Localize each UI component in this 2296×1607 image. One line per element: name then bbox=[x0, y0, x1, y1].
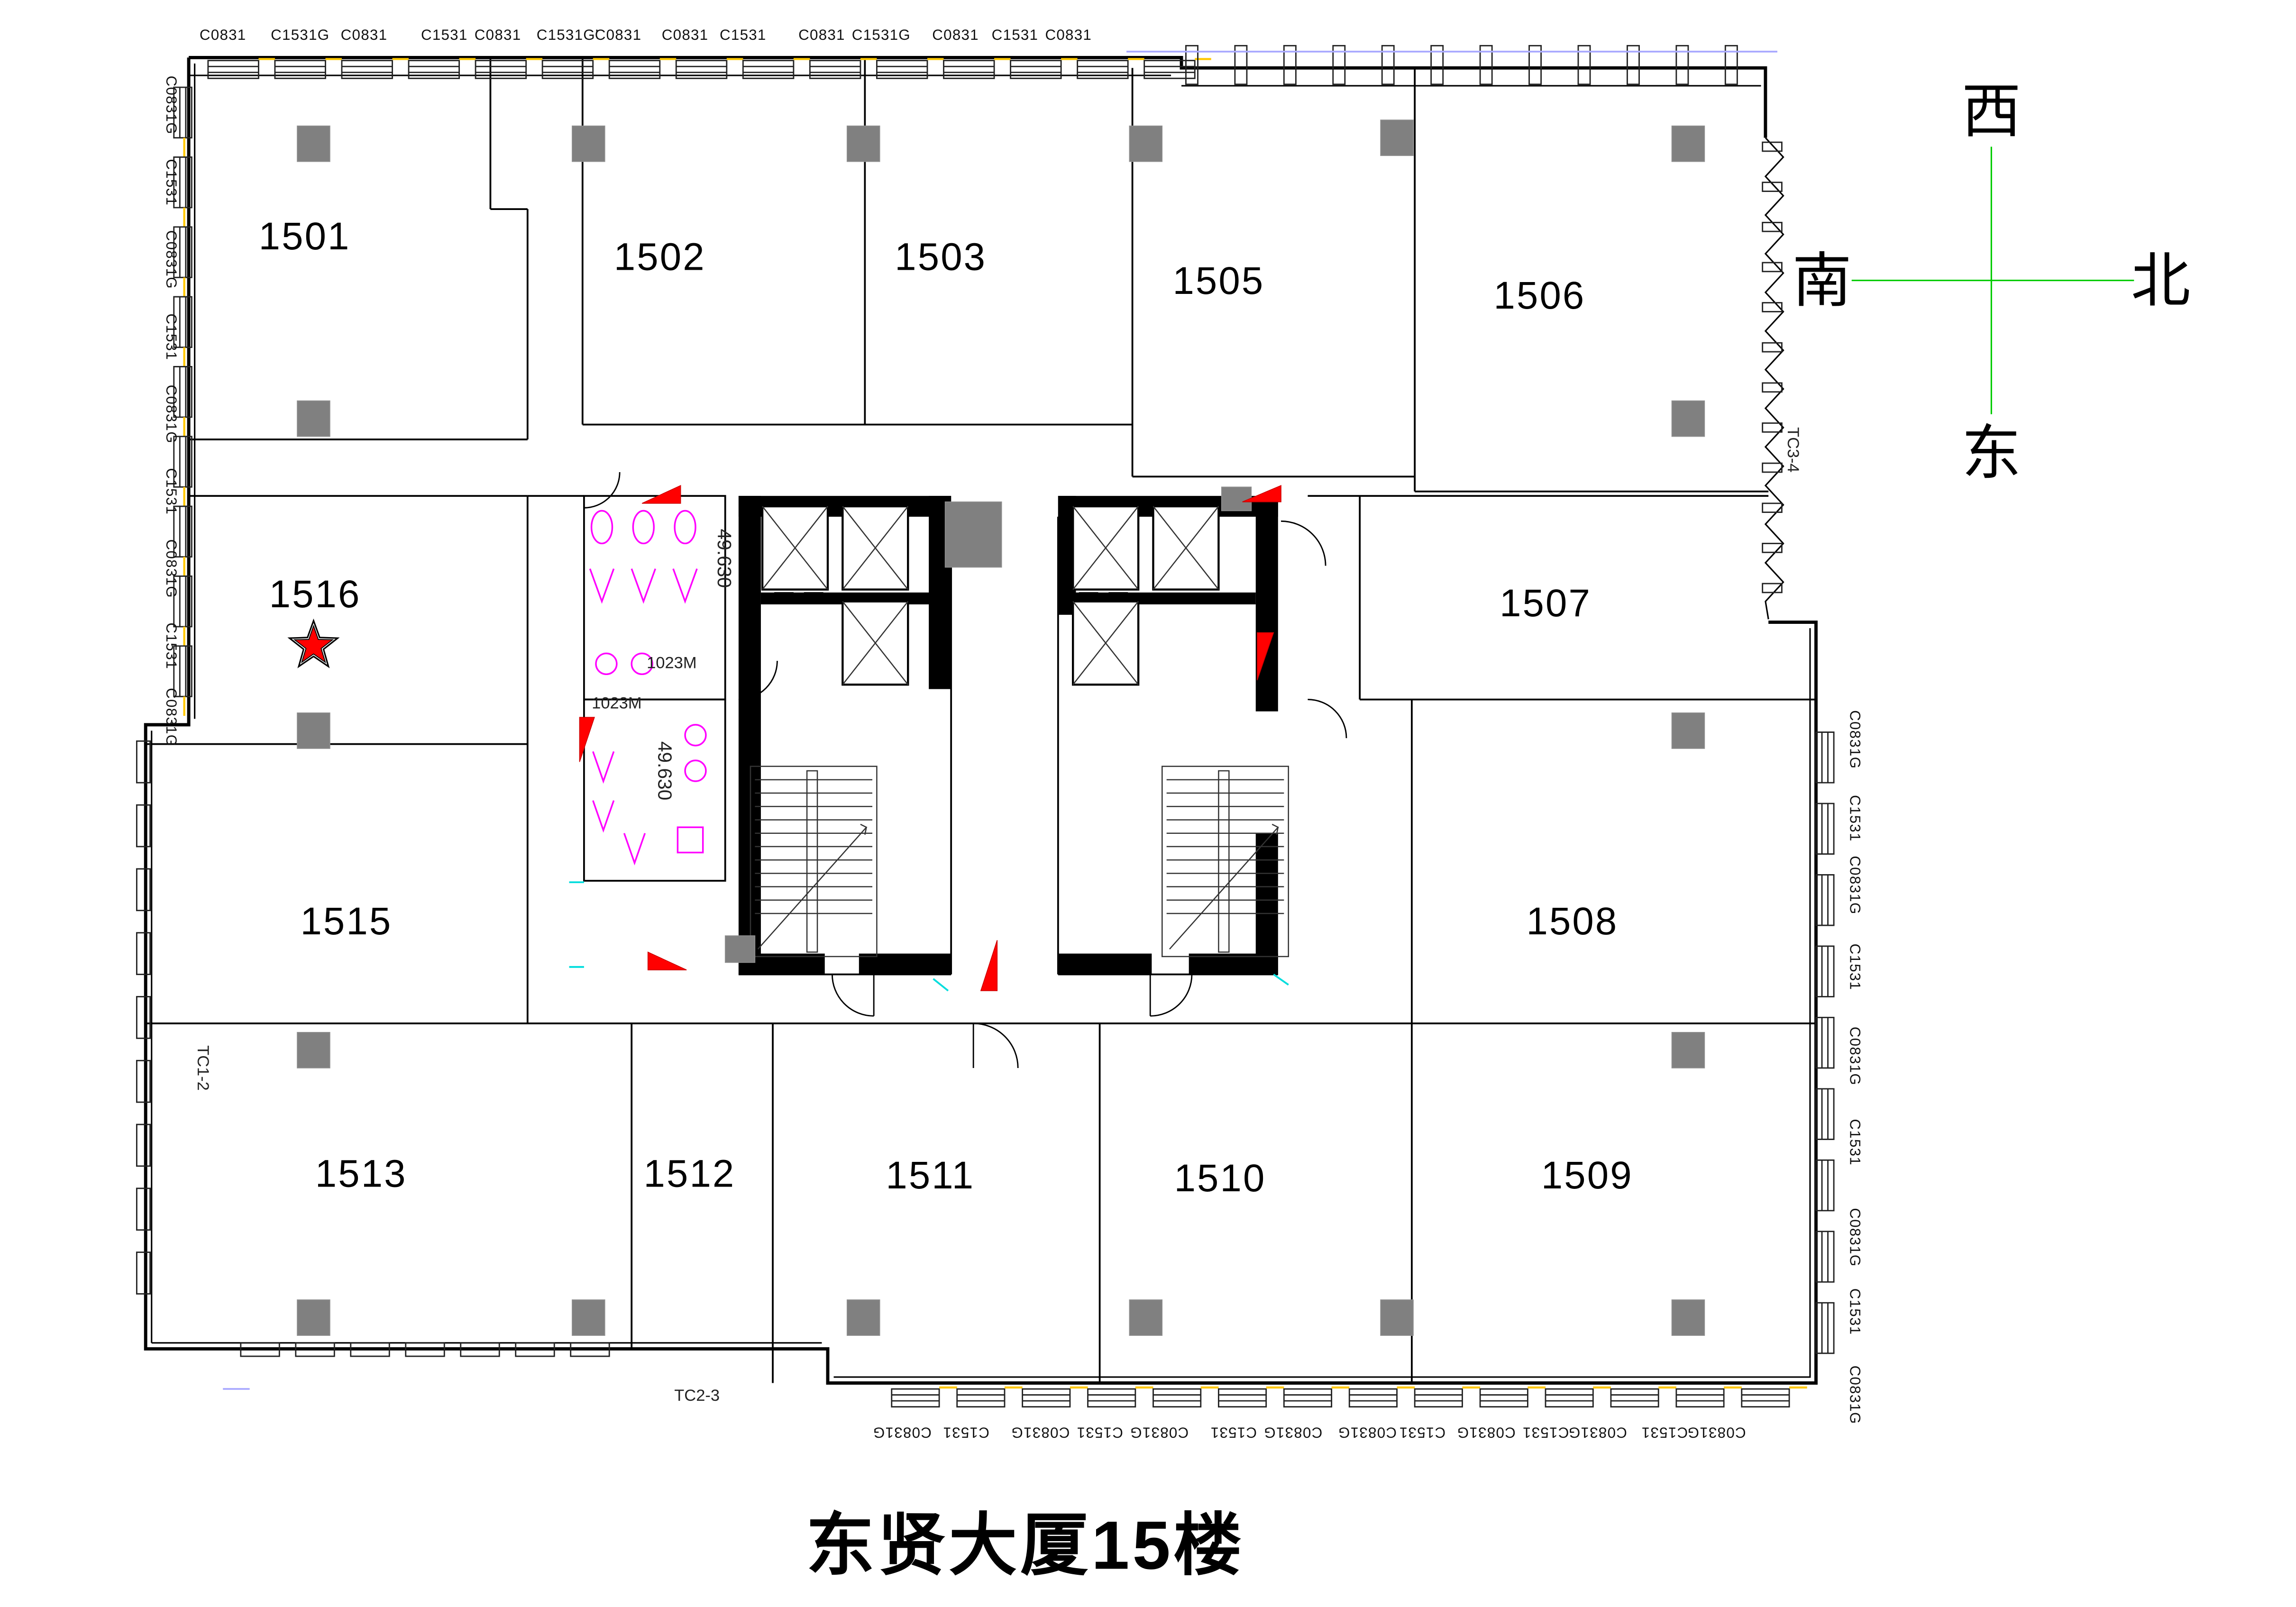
window-type-label: C1531 bbox=[1847, 795, 1864, 842]
window-type-label: C1531 bbox=[1210, 1424, 1257, 1441]
sink-icon bbox=[685, 760, 706, 781]
window-type-label: C0831G bbox=[1568, 1424, 1627, 1441]
window-type-label: C0831 bbox=[1045, 27, 1092, 43]
window-type-label: C0831 bbox=[341, 27, 388, 43]
window-glyph bbox=[1415, 1389, 1462, 1407]
wall-pier bbox=[1763, 584, 1782, 593]
column bbox=[1672, 1032, 1704, 1068]
mop-sink-icon bbox=[677, 827, 703, 852]
room-label-1512: 1512 bbox=[644, 1152, 736, 1196]
urinal-icon bbox=[592, 511, 613, 543]
location-star-icon bbox=[290, 621, 338, 667]
sink-icon bbox=[685, 725, 706, 746]
compass-west: 西 bbox=[1962, 79, 2021, 145]
wall-pier bbox=[1763, 423, 1782, 432]
window-tick bbox=[137, 1124, 150, 1166]
window-type-label: C1531 bbox=[1076, 1424, 1123, 1441]
window-type-label: C1531 bbox=[1847, 1119, 1864, 1166]
window-tick bbox=[137, 869, 150, 911]
window-tick bbox=[137, 1060, 150, 1102]
window-glyph bbox=[1816, 1232, 1834, 1282]
window-type-label: C0831 bbox=[595, 27, 642, 43]
toilet-block bbox=[584, 496, 725, 881]
core-column bbox=[945, 502, 1002, 567]
urinal-icon bbox=[675, 511, 695, 543]
window-glyph bbox=[1218, 1389, 1266, 1407]
column bbox=[1672, 401, 1704, 437]
window-type-label: C0831G bbox=[1687, 1424, 1746, 1441]
window-type-label: C0831G bbox=[163, 76, 180, 135]
column bbox=[847, 126, 880, 162]
window-type-label: C1531 bbox=[1399, 1424, 1446, 1441]
column bbox=[572, 126, 605, 162]
room-label-1510: 1510 bbox=[1174, 1157, 1266, 1200]
window-tick bbox=[137, 741, 150, 783]
room-label-1513: 1513 bbox=[315, 1152, 407, 1196]
window-glyph bbox=[1816, 1017, 1834, 1068]
window-type-label: C1531 bbox=[942, 1424, 989, 1441]
window-type-label: C0831G bbox=[1847, 710, 1864, 769]
window-tick bbox=[137, 997, 150, 1039]
stairs bbox=[750, 767, 1289, 957]
column bbox=[847, 1300, 880, 1335]
window-type-label: C0831G bbox=[163, 539, 180, 598]
window-type-label: C1531 bbox=[992, 27, 1039, 43]
stair-rail bbox=[807, 771, 817, 952]
wall-pier bbox=[1763, 142, 1782, 151]
column bbox=[1672, 1300, 1704, 1335]
window-glyph bbox=[1153, 1389, 1200, 1407]
room-label-1516: 1516 bbox=[269, 573, 361, 616]
window-type-label: C0831G bbox=[1847, 1208, 1864, 1267]
window-glyph bbox=[1284, 1389, 1331, 1407]
window-glyph bbox=[892, 1389, 939, 1407]
window-tick bbox=[137, 805, 150, 847]
level-annotation: 49.630 bbox=[713, 529, 735, 588]
column bbox=[1381, 120, 1413, 155]
room-labels: 1501 1502 1503 1505 1506 1507 1508 1509 … bbox=[259, 215, 1633, 1200]
window-glyph bbox=[1742, 1389, 1789, 1407]
window-type-label: C1531 bbox=[163, 159, 180, 206]
room-label-1515: 1515 bbox=[300, 900, 392, 943]
column bbox=[1129, 1300, 1162, 1335]
grid-tag-tc1-2: TC1-2 bbox=[194, 1045, 212, 1091]
room-label-1502: 1502 bbox=[614, 236, 706, 279]
window-type-label: C0831G bbox=[1130, 1424, 1189, 1441]
floor-plan-canvas: 1501 1502 1503 1505 1506 1507 1508 1509 … bbox=[0, 0, 2296, 1607]
column bbox=[1129, 126, 1162, 162]
wall-pier bbox=[1763, 503, 1782, 512]
window-glyph bbox=[1816, 946, 1834, 997]
window-tick bbox=[137, 933, 150, 975]
window-type-label: C1531 bbox=[1641, 1424, 1688, 1441]
window-type-label: C1531 bbox=[421, 27, 468, 43]
room-label-1506: 1506 bbox=[1494, 274, 1586, 317]
window-type-label: C0831G bbox=[163, 230, 180, 289]
column bbox=[297, 126, 330, 162]
window-type-label: C1531 bbox=[1522, 1424, 1569, 1441]
window-type-label: C0831G bbox=[1847, 856, 1864, 914]
window-type-label: C0831 bbox=[798, 27, 845, 43]
room-label-1511: 1511 bbox=[886, 1154, 975, 1197]
window-tick bbox=[137, 1252, 150, 1294]
stall-doors bbox=[590, 569, 697, 602]
column bbox=[297, 713, 330, 749]
sink-icon bbox=[596, 653, 617, 674]
grid-tag-tc3-4: TC3-4 bbox=[1784, 427, 1802, 473]
column bbox=[297, 401, 330, 437]
window-type-label: C1531 bbox=[163, 622, 180, 669]
column bbox=[1381, 1300, 1413, 1335]
window-type-label: C0831G bbox=[1457, 1424, 1516, 1441]
wall-pier bbox=[1763, 263, 1782, 272]
window-type-label: C0831G bbox=[1847, 1365, 1864, 1424]
window-type-label: C0831G bbox=[163, 688, 180, 747]
window-glyph bbox=[1480, 1389, 1528, 1407]
window-glyph bbox=[1349, 1389, 1397, 1407]
window-tick bbox=[137, 1188, 150, 1230]
compass-south: 南 bbox=[1792, 248, 1851, 314]
window-type-label: C1531 bbox=[720, 27, 767, 43]
window-type-label: C0831G bbox=[1011, 1424, 1070, 1441]
room-label-1503: 1503 bbox=[895, 236, 987, 279]
column bbox=[297, 1032, 330, 1068]
window-type-label: C1531 bbox=[163, 468, 180, 515]
column bbox=[297, 1300, 330, 1335]
core-column bbox=[725, 936, 755, 962]
room-label-1508: 1508 bbox=[1527, 900, 1619, 943]
window-type-label: C1531 bbox=[1847, 944, 1864, 991]
window-glyph bbox=[1023, 1389, 1070, 1407]
door-tag: 1023M bbox=[592, 694, 641, 712]
grid-tag-tc2-3: TC2-3 bbox=[674, 1387, 720, 1405]
wall-pier bbox=[1763, 343, 1782, 352]
compass-cross bbox=[1852, 146, 2134, 414]
column bbox=[1672, 713, 1704, 749]
window-glyph bbox=[1088, 1389, 1135, 1407]
compass-east: 东 bbox=[1962, 421, 2021, 487]
window-type-label: C1531G bbox=[852, 27, 911, 43]
window-type-label: C0831 bbox=[200, 27, 247, 43]
urinal-icon bbox=[633, 511, 654, 543]
page-title: 东贤大厦15楼 bbox=[806, 1507, 1244, 1583]
window-glyph bbox=[957, 1389, 1005, 1407]
room-label-1505: 1505 bbox=[1172, 259, 1264, 302]
window-type-label: C1531 bbox=[163, 313, 180, 360]
window-glyph bbox=[1816, 803, 1834, 854]
window-glyph bbox=[1816, 1160, 1834, 1211]
window-glyph bbox=[1676, 1389, 1724, 1407]
window-type-label: C1531 bbox=[1847, 1288, 1864, 1335]
window-glyph bbox=[1611, 1389, 1658, 1407]
room-label-1501: 1501 bbox=[259, 215, 351, 258]
door-tag: 1023M bbox=[647, 654, 696, 672]
core-column bbox=[1222, 487, 1252, 511]
compass-north: 北 bbox=[2131, 248, 2190, 314]
window-type-label: C0831G bbox=[1847, 1027, 1864, 1086]
window-glyph bbox=[1816, 875, 1834, 925]
stair-rail bbox=[1218, 771, 1229, 952]
stall-doors bbox=[593, 751, 645, 863]
compass: 西 南 北 东 bbox=[1792, 79, 2190, 487]
window-glyph bbox=[1816, 1089, 1834, 1140]
room-label-1507: 1507 bbox=[1500, 582, 1592, 625]
window-glyph bbox=[1816, 1303, 1834, 1353]
window-type-label: C1531G bbox=[271, 27, 329, 43]
stair-outline bbox=[750, 767, 877, 957]
window-type-label: C1531G' bbox=[537, 27, 599, 43]
window-type-label: C0831 bbox=[932, 27, 979, 43]
window-type-label: C0831 bbox=[475, 27, 521, 43]
window-glyph bbox=[1546, 1389, 1593, 1407]
column bbox=[572, 1300, 605, 1335]
window-type-label: C0831G bbox=[163, 385, 180, 444]
level-annotation: 49.630 bbox=[654, 741, 676, 801]
window-type-label: C0831 bbox=[662, 27, 709, 43]
window-type-label: C0831G bbox=[1263, 1424, 1322, 1441]
window-type-label: C0831G bbox=[873, 1424, 932, 1441]
window-glyph bbox=[1816, 732, 1834, 783]
room-label-1509: 1509 bbox=[1541, 1154, 1633, 1197]
window-type-label: C0831G bbox=[1338, 1424, 1397, 1441]
column bbox=[1672, 126, 1704, 162]
